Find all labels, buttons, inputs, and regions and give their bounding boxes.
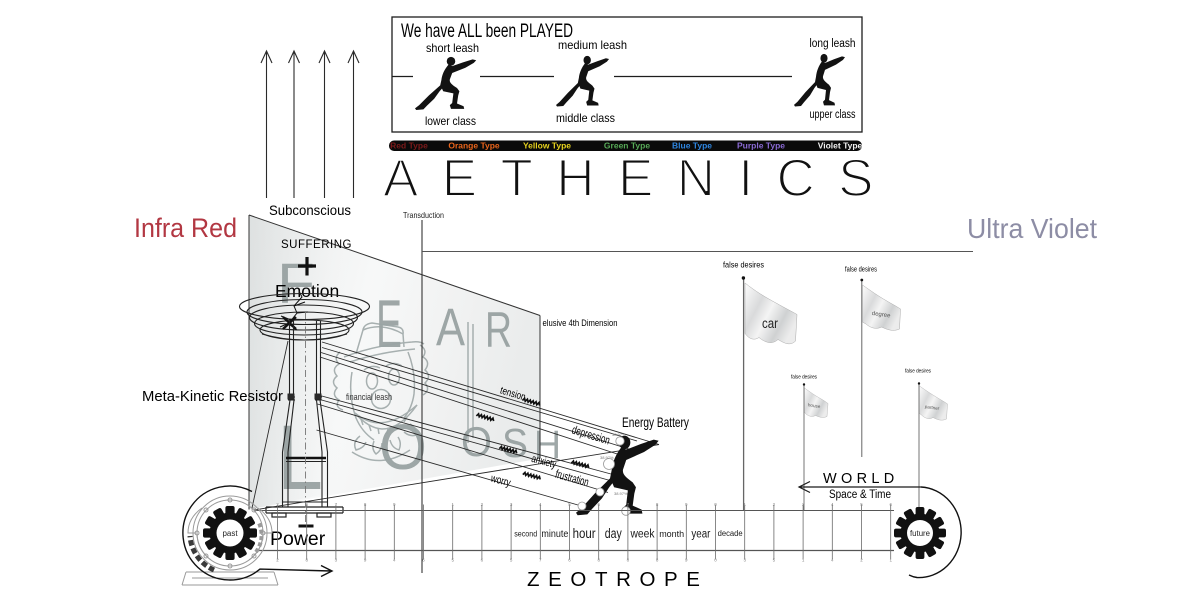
svg-text:false desires: false desires	[845, 267, 877, 274]
svg-text:middle class: middle class	[556, 111, 615, 125]
svg-text:Subconscious: Subconscious	[269, 202, 351, 218]
svg-text:38.97%: 38.97%	[612, 432, 626, 437]
svg-text:minute: minute	[541, 529, 568, 540]
svg-text:Energy Battery: Energy Battery	[622, 414, 689, 430]
svg-text:day: day	[605, 526, 622, 541]
svg-text:A: A	[436, 298, 466, 357]
svg-text:Emotion: Emotion	[275, 281, 339, 301]
svg-text:38.97%: 38.97%	[614, 491, 628, 496]
svg-text:week: week	[630, 529, 655, 541]
svg-text:financial leash: financial leash	[346, 392, 392, 403]
svg-text:long leash: long leash	[810, 38, 856, 50]
svg-text:month: month	[659, 529, 684, 540]
svg-text:short leash: short leash	[426, 41, 479, 55]
svg-text:38.97%: 38.97%	[600, 455, 614, 460]
svg-text:We have ALL been PLAYED: We have ALL been PLAYED	[401, 21, 573, 42]
svg-text:medium leash: medium leash	[558, 38, 627, 52]
svg-text:second: second	[514, 529, 537, 539]
svg-text:R: R	[485, 302, 512, 358]
svg-text:past: past	[222, 529, 238, 538]
svg-text:Space & Time: Space & Time	[829, 489, 891, 501]
svg-text:WORLD: WORLD	[823, 471, 898, 487]
svg-text:Ultra Violet: Ultra Violet	[967, 213, 1097, 244]
svg-text:car: car	[762, 316, 778, 331]
svg-text:future: future	[910, 528, 930, 538]
svg-text:Meta-Kinetic Resistor: Meta-Kinetic Resistor	[142, 389, 283, 405]
svg-text:S: S	[502, 420, 528, 466]
svg-text:ZEOTROPE: ZEOTROPE	[527, 568, 709, 591]
svg-text:O: O	[461, 418, 492, 465]
svg-text:Power: Power	[270, 528, 326, 550]
svg-text:upper class: upper class	[810, 109, 856, 121]
svg-text:Transduction: Transduction	[403, 210, 444, 220]
svg-text:year: year	[691, 529, 710, 541]
svg-text:hour: hour	[573, 526, 596, 541]
svg-text:AETHENICS: AETHENICS	[383, 149, 897, 208]
svg-text:SUFFERING: SUFFERING	[281, 239, 352, 251]
svg-text:false desires: false desires	[723, 260, 764, 270]
svg-text:false desires: false desires	[905, 369, 931, 375]
svg-text:lower class: lower class	[425, 114, 476, 128]
svg-text:false desires: false desires	[791, 375, 817, 381]
svg-text:decade: decade	[718, 529, 744, 538]
svg-text:elusive 4th Dimension: elusive 4th Dimension	[543, 318, 618, 329]
svg-text:Infra Red: Infra Red	[134, 213, 237, 243]
